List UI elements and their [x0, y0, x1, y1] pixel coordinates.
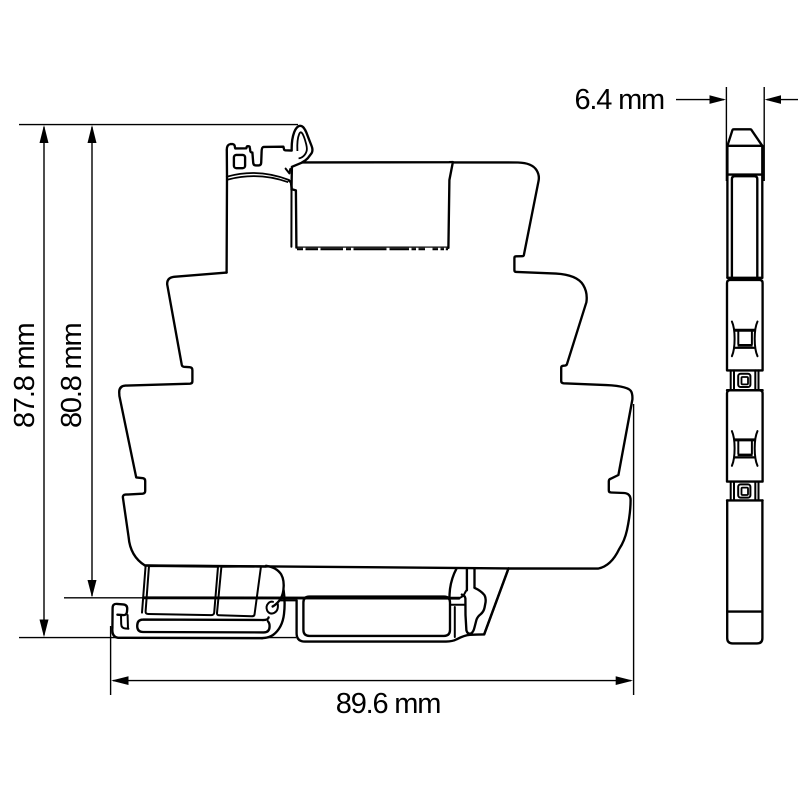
svg-text:87.8 mm: 87.8 mm — [9, 324, 41, 428]
svg-text:80.8 mm: 80.8 mm — [56, 324, 88, 428]
svg-text:6.4 mm: 6.4 mm — [575, 84, 665, 116]
svg-text:89.6 mm: 89.6 mm — [336, 688, 440, 720]
